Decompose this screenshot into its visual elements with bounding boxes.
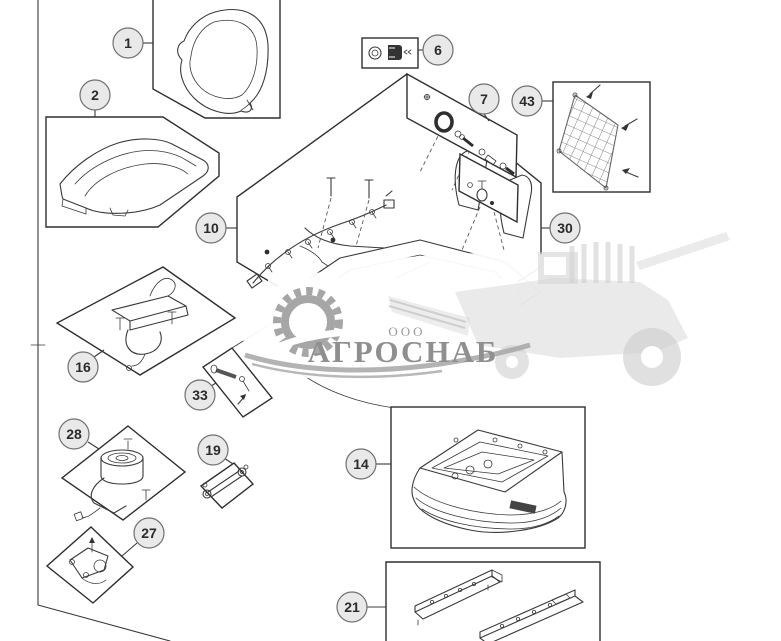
svg-text:21: 21 — [344, 599, 360, 615]
svg-text:27: 27 — [141, 525, 157, 541]
callout-16[interactable]: 16 — [68, 352, 98, 382]
part-box-27-motor — [47, 527, 133, 603]
svg-text:6: 6 — [434, 42, 442, 58]
callout-30[interactable]: 30 — [550, 213, 580, 243]
callout-1[interactable]: 1 — [113, 28, 143, 58]
svg-text:30: 30 — [557, 220, 573, 236]
part-box-6-clips — [362, 38, 418, 68]
part-box-14-suspension — [391, 407, 585, 548]
part-box-19-link — [201, 463, 253, 508]
part-box-21-rails — [386, 562, 600, 641]
callout-2[interactable]: 2 — [80, 80, 110, 110]
parts-diagram-page: ООО АГРОСНАБ 1 2 6 7 43 10 30 16 3 — [0, 0, 781, 641]
svg-text:7: 7 — [480, 91, 488, 107]
watermark-company-name: АГРОСНАБ — [308, 334, 499, 369]
svg-text:2: 2 — [91, 87, 99, 103]
callout-43[interactable]: 43 — [512, 86, 542, 116]
callout-33[interactable]: 33 — [185, 380, 215, 410]
svg-text:43: 43 — [519, 93, 535, 109]
callout-14[interactable]: 14 — [346, 449, 376, 479]
callout-19[interactable]: 19 — [198, 435, 228, 465]
svg-text:19: 19 — [205, 442, 221, 458]
callout-27[interactable]: 27 — [134, 518, 164, 548]
diagram-canvas: ООО АГРОСНАБ 1 2 6 7 43 10 30 16 3 — [0, 0, 781, 641]
svg-text:28: 28 — [66, 426, 82, 442]
svg-text:16: 16 — [75, 359, 91, 375]
svg-text:33: 33 — [192, 387, 208, 403]
part-box-2-seat-cushion — [46, 117, 219, 227]
callout-10[interactable]: 10 — [196, 213, 226, 243]
callout-28[interactable]: 28 — [59, 419, 89, 449]
svg-text:1: 1 — [124, 35, 132, 51]
part-box-1-headrest — [153, 0, 280, 118]
callout-7[interactable]: 7 — [469, 84, 499, 114]
svg-text:14: 14 — [353, 456, 369, 472]
callout-6[interactable]: 6 — [423, 35, 453, 65]
callout-21[interactable]: 21 — [337, 592, 367, 622]
svg-text:10: 10 — [203, 220, 219, 236]
part-box-43-net — [553, 82, 650, 192]
